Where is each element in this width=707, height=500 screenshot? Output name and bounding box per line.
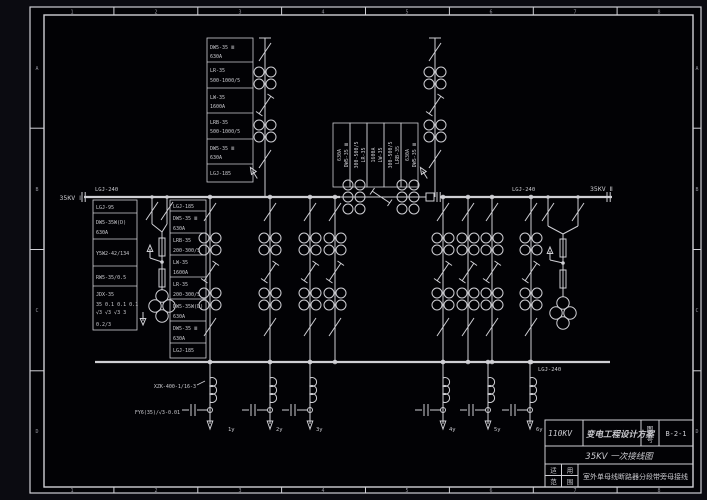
equipment-rating: 300-500/5 [354, 141, 360, 168]
feeder-label: 1y [228, 427, 235, 433]
equipment-rating: 200-300/5 [173, 292, 200, 298]
equipment-model: DW5-35 Ⅲ [412, 143, 418, 168]
equipment-model: LRB-35 [210, 120, 228, 126]
equipment-rating: 1600A [210, 104, 225, 110]
equipment-rating: 500-1000/5 [210, 129, 240, 135]
zone-number: 1 [70, 10, 73, 16]
zone-letter: A [35, 66, 38, 72]
zone-number: 2 [154, 10, 157, 16]
equipment-model: LR-35 [361, 147, 367, 162]
zone-number: 5 [405, 10, 408, 16]
scope-label-char: 用 [567, 467, 574, 475]
sheet-title: 35KV 一次接线图 [585, 451, 654, 462]
zone-number: 4 [321, 10, 324, 16]
zone-number: 6 [489, 488, 492, 494]
equipment-model: LW-35 [173, 260, 188, 266]
drawing-number: B-2-1 [665, 430, 686, 438]
equipment-model: LR-35 [210, 68, 225, 74]
equipment-model: LW-35 [378, 147, 384, 162]
equipment-rating: 630A [210, 155, 222, 161]
equipment-model: DW5-35 Ⅲ [173, 216, 198, 222]
equipment-rating: 630A [173, 226, 185, 232]
equipment-model: Y5W2-42/134 [96, 251, 129, 257]
equipment-model: DW5-35 Ⅲ [210, 45, 235, 51]
pt-accuracy: 0.2/3 [96, 322, 111, 328]
zone-number: 3 [238, 10, 241, 16]
equipment-model: LW-35 [210, 95, 225, 101]
zone-number: 5 [405, 488, 408, 494]
scope-label-char: 适 [550, 466, 557, 475]
pt-ratio: 35 0.1 0.1 0.1 [96, 302, 138, 308]
scope-label-char: 围 [567, 478, 574, 486]
zone-letter: D [35, 429, 38, 435]
equipment-model: LRB-35 [395, 146, 401, 164]
zone-number: 3 [238, 488, 241, 494]
equipment-model: LR-35 [173, 282, 188, 288]
zone-letter: C [35, 308, 38, 314]
equipment-model: LGJ-185 [173, 204, 194, 210]
zone-letter: B [695, 187, 698, 193]
reactor-model-label: XZK-400-1/16-3 [154, 384, 196, 390]
zone-number: 6 [489, 10, 492, 16]
equipment-rating: 630A [173, 336, 185, 342]
bus-name-label: 35KV Ⅱ [590, 185, 613, 193]
equipment-rating: 630A [96, 230, 108, 236]
equipment-model: LGJ-95 [96, 205, 114, 211]
equipment-model: DW5-35W(D) [173, 304, 203, 310]
equipment-model: DW5-35W(D) [96, 220, 126, 226]
zone-number: 7 [573, 488, 576, 494]
zone-letter: A [695, 66, 698, 72]
schematic-canvas: 1 2 3 4 5 6 7 8 1 2 3 4 5 6 7 8 A B C D … [0, 0, 707, 500]
equipment-model: DW5-35 Ⅲ [173, 326, 198, 332]
drawing-no-label: 号 [647, 436, 654, 444]
equipment-rating: 300-500/5 [388, 141, 394, 168]
feeder-label: 5y [494, 427, 501, 433]
zone-number: 8 [657, 488, 660, 494]
bus-name-label: 35KV Ⅰ [60, 194, 82, 202]
cad-drawing-viewport: 1 2 3 4 5 6 7 8 1 2 3 4 5 6 7 8 A B C D … [0, 0, 707, 500]
zone-letter: C [695, 308, 698, 314]
equipment-rating: 1600A [371, 147, 377, 162]
equipment-rating: 630A [210, 54, 222, 60]
project-title: 变电工程设计方案 [586, 429, 656, 440]
zone-letter: D [695, 429, 698, 435]
equipment-model: JDX-35 [96, 292, 114, 298]
zone-number: 1 [70, 488, 73, 494]
equipment-rating: 1600A [173, 270, 188, 276]
pt-ratio: √3 √3 √3 3 [96, 310, 126, 316]
drawing-no-label: 图 [647, 425, 654, 433]
equipment-model: LRB-35 [173, 238, 191, 244]
feeder-label: 6y [536, 427, 543, 433]
zone-number: 2 [154, 488, 157, 494]
equipment-model: DW5-35 Ⅲ [344, 143, 350, 168]
feeder-label: 3y [316, 427, 323, 433]
bypass-conductor-label: LGJ-240 [538, 367, 561, 373]
equipment-model: RW5-35/0.5 [96, 275, 126, 281]
equipment-rating: 630A [337, 149, 343, 161]
project-voltage: 110KV [548, 429, 573, 438]
feeder-label: 4y [449, 427, 456, 433]
zone-number: 8 [657, 10, 660, 16]
bus-conductor-label: LGJ-240 [95, 187, 118, 193]
capacitor-model-label: FY6(35)/√3-0.01 [135, 410, 180, 416]
feeder-label: 2y [276, 427, 283, 433]
equipment-model: LGJ-185 [173, 348, 194, 354]
equipment-model: DW5-35 Ⅲ [210, 146, 235, 152]
bus-conductor-label: LGJ-240 [512, 187, 535, 193]
zone-letter: B [35, 187, 38, 193]
equipment-rating: 630A [405, 149, 411, 161]
scope-label-char: 范 [550, 477, 557, 486]
zone-number: 7 [573, 10, 576, 16]
scope-text: 室外单母线断路器分段带旁母接线 [583, 472, 688, 481]
equipment-rating: 500-1000/5 [210, 78, 240, 84]
zone-number: 4 [321, 488, 324, 494]
equipment-model: LGJ-185 [210, 171, 231, 177]
equipment-rating: 630A [173, 314, 185, 320]
equipment-rating: 200-300/5 [173, 248, 200, 254]
